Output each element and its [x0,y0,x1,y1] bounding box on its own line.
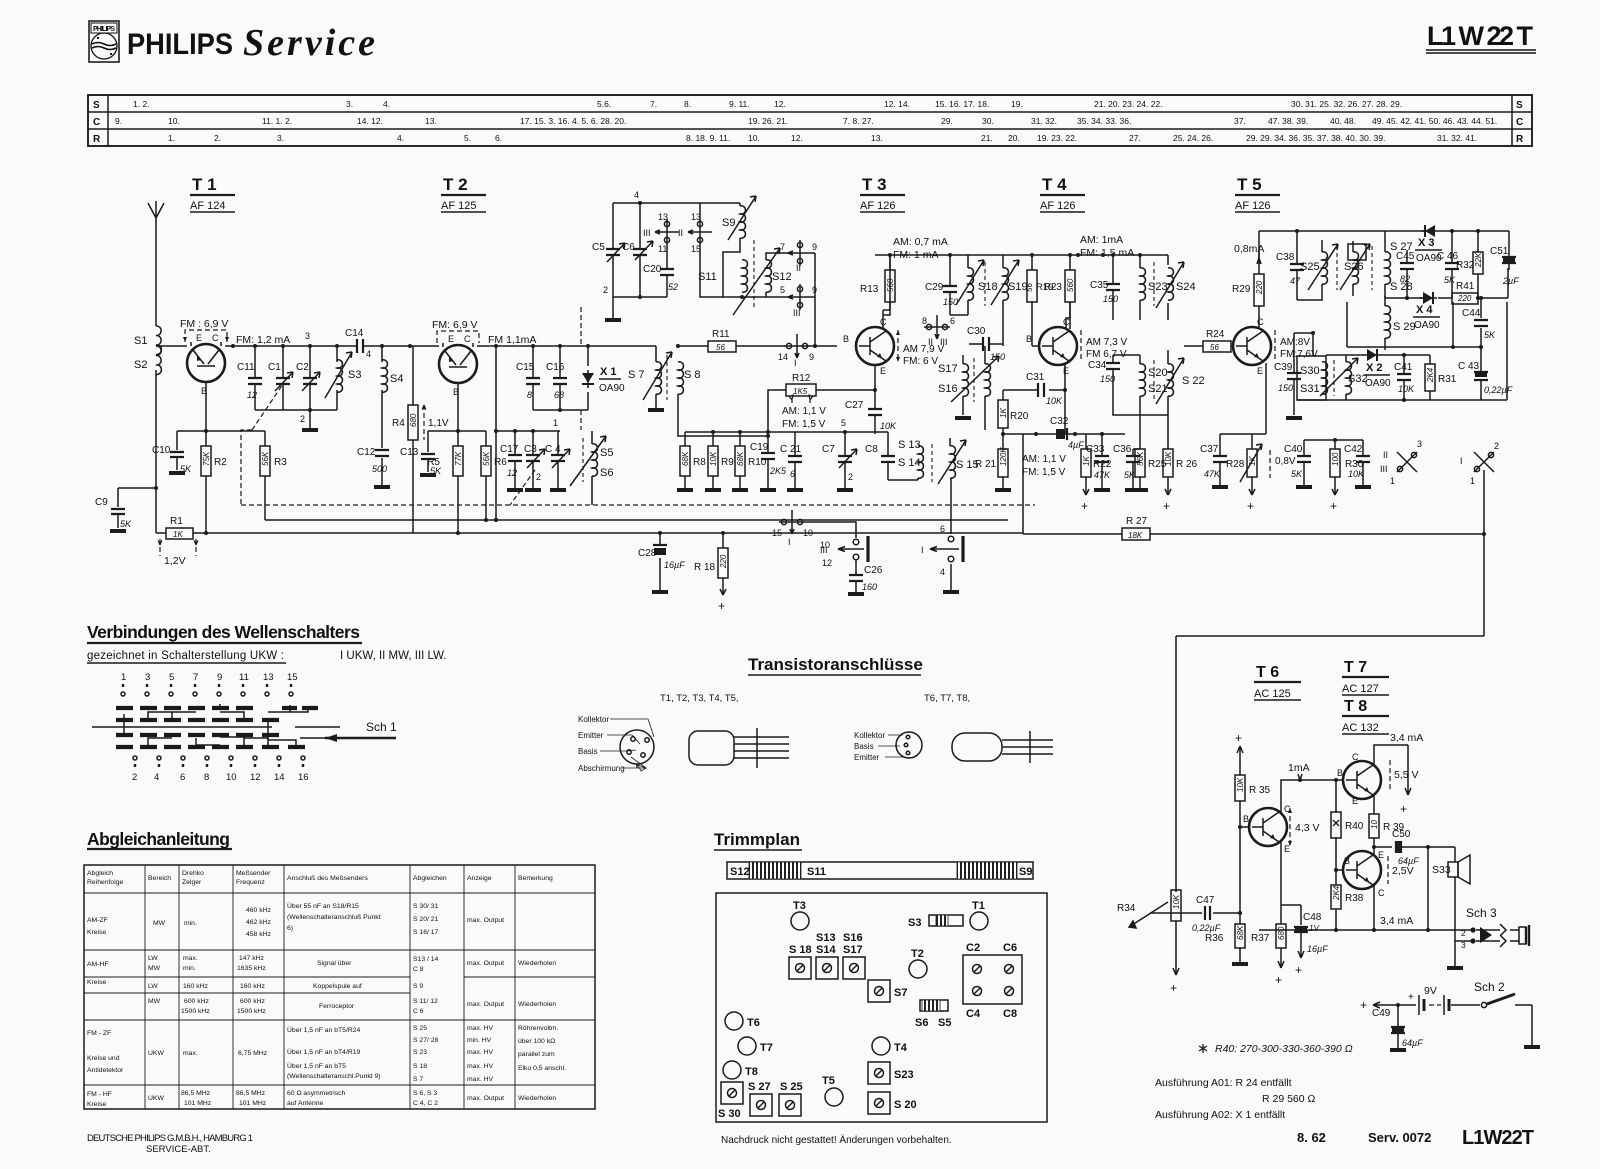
svg-text:600 kHz: 600 kHz [240,998,266,1005]
svg-text:9V: 9V [1424,985,1437,997]
svg-text:S 30/ 31: S 30/ 31 [413,903,439,910]
svg-text:8. 62: 8. 62 [1297,1130,1326,1145]
svg-text:S 27: S 27 [748,1081,771,1093]
svg-text:8: 8 [922,316,927,326]
svg-text:S17: S17 [843,944,863,956]
svg-text:+: + [1400,802,1407,816]
svg-text:680: 680 [1277,926,1286,940]
svg-text:13.: 13. [871,133,883,143]
svg-text:S25: S25 [1300,261,1320,273]
svg-text:S3: S3 [908,917,921,929]
svg-text:C49: C49 [1372,1008,1391,1019]
svg-text:T2: T2 [911,948,924,960]
svg-text:(Wellenschalteranschl.Punkt 9): (Wellenschalteranschl.Punkt 9) [287,1073,381,1080]
svg-text:6: 6 [180,772,185,783]
svg-text:C7: C7 [822,444,835,455]
svg-text:12. 14.: 12. 14. [884,99,910,109]
svg-text:C28: C28 [638,548,657,559]
svg-text:S30: S30 [1300,365,1320,377]
svg-text:10K: 10K [1236,777,1245,792]
svg-text:II: II [928,337,933,347]
svg-text:S 7: S 7 [413,1076,423,1083]
svg-text:C32: C32 [1050,416,1069,427]
svg-text:R 29 560 Ω: R 29 560 Ω [1262,1093,1316,1105]
svg-text:11. 1. 2.: 11. 1. 2. [262,116,292,126]
svg-text:150: 150 [1278,383,1293,393]
svg-text:3: 3 [305,331,310,341]
svg-text:6: 6 [950,316,955,326]
svg-text:2K4: 2K4 [1332,885,1341,901]
svg-text:C 4: C 4 [545,444,561,455]
svg-text:1K5: 1K5 [793,387,808,396]
svg-text:17. 15. 3. 16. 4. 5.: 17. 15. 3. 16. 4. 5. 6. 28. 20. [520,116,626,126]
svg-text:R9: R9 [721,457,734,468]
svg-text:S3: S3 [348,369,361,381]
svg-text:S14: S14 [816,944,836,956]
svg-text:R3: R3 [274,457,287,468]
svg-text:Verbindungen des Wellenschalte: Verbindungen des Wellenschalters [87,622,360,642]
svg-text:Über 1,5 nF an bT5: Über 1,5 nF an bT5 [287,1062,346,1070]
svg-text:C2: C2 [296,362,309,373]
svg-text:1500 kHz: 1500 kHz [181,1008,210,1015]
svg-text:100: 100 [1331,452,1340,466]
svg-text:12.: 12. [774,99,786,109]
svg-text:1K: 1K [999,408,1008,418]
svg-text:C 43: C 43 [1458,361,1480,372]
svg-text:C 8: C 8 [413,966,424,973]
svg-text:R 35: R 35 [1249,785,1271,796]
svg-text:2: 2 [536,472,541,482]
svg-text:+: + [1247,499,1254,513]
svg-text:B: B [843,334,849,344]
svg-text:C42: C42 [1344,444,1363,455]
svg-text:Sch 1: Sch 1 [366,720,397,734]
svg-text:1: 1 [1390,476,1395,486]
svg-text:10.: 10. [168,116,180,126]
svg-text:2: 2 [1461,928,1466,938]
svg-text:9: 9 [812,242,817,252]
svg-text:1635 kHz: 1635 kHz [237,965,266,972]
svg-text:max. Output: max. Output [467,917,504,924]
svg-text:22K: 22K [1474,252,1483,268]
svg-text:S 22: S 22 [1182,375,1205,387]
svg-text:160 kHz: 160 kHz [183,983,209,990]
svg-text:C5: C5 [592,242,605,253]
svg-text:I: I [921,545,924,555]
svg-text:T 8: T 8 [1344,698,1367,715]
svg-text:Ausführung A01: R 24 entfä: Ausführung A01: R 24 entfällt [1155,1077,1292,1089]
svg-text:56: 56 [1025,283,1034,292]
svg-text:37.: 37. [1234,116,1246,126]
svg-text:40. 48.: 40. 48. [1330,116,1356,126]
svg-text:C48: C48 [1303,912,1322,923]
svg-text:S24: S24 [1176,281,1196,293]
svg-text:S12: S12 [730,866,750,878]
svg-text:Wiederholen: Wiederholen [518,960,556,967]
svg-text:C: C [93,117,100,128]
svg-text:Emitter: Emitter [578,731,604,740]
svg-text:Elko 0,5 anschl.: Elko 0,5 anschl. [518,1065,566,1072]
svg-text:Trimmplan: Trimmplan [714,830,800,849]
svg-text:8. 18. 9. 11.: 8. 18. 9. 11. [686,133,730,143]
svg-text:R 18: R 18 [694,562,716,573]
svg-text:S 15: S 15 [956,459,979,471]
svg-text:R24: R24 [1206,329,1225,340]
svg-text:R 26: R 26 [1176,459,1198,470]
svg-text:C4: C4 [966,1008,981,1020]
svg-text:X 3: X 3 [1418,237,1435,249]
svg-text:C50: C50 [1392,829,1411,840]
svg-text:+: + [1275,973,1282,987]
svg-text:2,5V: 2,5V [1392,865,1414,877]
svg-text:S 18: S 18 [789,944,812,956]
svg-text:AM: 1,1 V: AM: 1,1 V [1022,454,1066,465]
svg-text:OA90: OA90 [1414,320,1440,331]
svg-text:47K: 47K [1204,469,1221,479]
svg-text:R13: R13 [860,284,879,295]
svg-text:47: 47 [1290,276,1301,286]
svg-text:C 6: C 6 [413,1008,424,1015]
svg-text:500: 500 [372,464,387,474]
svg-text:19. 23. 22.: 19. 23. 22. [1037,133,1077,143]
svg-text:SERVICE-ABT.: SERVICE-ABT. [146,1144,211,1155]
svg-text:12: 12 [507,468,517,478]
svg-text:max. HV: max. HV [467,1063,494,1070]
svg-text:T5: T5 [822,1075,835,1087]
svg-text:S32: S32 [1348,373,1368,385]
svg-text:S 25: S 25 [780,1081,803,1093]
svg-text:12.: 12. [791,133,803,143]
svg-text:5: 5 [169,672,174,683]
svg-text:Basis: Basis [854,742,874,751]
svg-text:9. 11.: 9. 11. [729,99,750,109]
svg-text:T 7: T 7 [1344,659,1367,676]
svg-text:10: 10 [226,772,237,783]
svg-text:III: III [643,228,651,238]
svg-text:Wiederholen: Wiederholen [518,1095,556,1102]
svg-text:III: III [1380,464,1388,474]
svg-text:PHILIPS: PHILIPS [127,28,233,61]
svg-text:1: 1 [1470,476,1475,486]
svg-text:AM 7,9 V: AM 7,9 V [903,344,944,355]
svg-text:25. 24. 26.: 25. 24. 26. [1173,133,1213,143]
svg-text:C31: C31 [1026,372,1045,383]
svg-text:9: 9 [809,352,814,362]
svg-text:2: 2 [603,285,608,295]
svg-text:2µF: 2µF [1502,276,1519,286]
svg-text:E: E [196,333,202,343]
svg-text:PHILIPS: PHILIPS [93,26,115,33]
svg-text:AM: 1,1 V: AM: 1,1 V [782,406,826,417]
svg-text:B: B [1344,856,1350,866]
svg-text:462 kHz: 462 kHz [246,919,272,926]
svg-text:16: 16 [298,772,309,783]
svg-text:S 14: S 14 [898,457,921,469]
svg-text:13: 13 [263,672,274,683]
svg-text:OA90: OA90 [599,383,625,394]
svg-text:1mA: 1mA [1288,762,1310,774]
svg-text:150: 150 [1100,374,1115,384]
svg-text:680: 680 [409,413,418,427]
svg-text:S 25: S 25 [413,1025,427,1032]
svg-text:1.: 1. [168,133,175,143]
svg-text:Bereich: Bereich [148,875,171,882]
svg-text:11: 11 [239,672,249,683]
svg-text:0,8mA: 0,8mA [1234,243,1264,255]
svg-text:AM 7,3 V: AM 7,3 V [1086,337,1127,348]
svg-text:S23: S23 [894,1069,914,1081]
svg-text:Anschluß des Meßsenders: Anschluß des Meßsenders [287,875,368,882]
svg-text:C 21: C 21 [780,444,802,455]
svg-text:R20: R20 [1010,411,1029,422]
svg-text:1: 1 [553,418,558,428]
svg-text:I UKW, II MW, III LW.: I UKW, II MW, III LW. [340,650,447,662]
svg-text:+: + [718,599,725,613]
svg-text:S 23: S 23 [413,1049,427,1056]
svg-text:T1, T2, T3, T4, T5,: T1, T2, T3, T4, T5, [660,693,739,704]
svg-text:56K: 56K [1136,451,1145,466]
svg-text:R2: R2 [214,457,227,468]
svg-text:B: B [1337,768,1343,778]
svg-text:R34: R34 [1117,903,1136,914]
svg-text:9.: 9. [115,116,122,126]
svg-text:S 16/ 17: S 16/ 17 [413,929,439,936]
svg-text:8.: 8. [684,99,691,109]
svg-text:+: + [1081,499,1088,513]
svg-text:max. HV: max. HV [467,1076,494,1083]
svg-text:3: 3 [1417,439,1422,449]
svg-text:+: + [1408,992,1414,1003]
svg-text:21.: 21. [981,133,993,143]
svg-text:Kollektor: Kollektor [854,731,885,740]
svg-text:Bemerkung: Bemerkung [518,875,553,882]
svg-text:5.6.: 5.6. [597,99,611,109]
svg-text:C6: C6 [1003,942,1017,954]
svg-text:14. 12.: 14. 12. [357,116,383,126]
svg-text:R38: R38 [1345,893,1364,904]
svg-text:max. HV: max. HV [467,1025,494,1032]
svg-text:R40: 270-300-330-360-390 Ω: R40: 270-300-330-360-390 Ω [1215,1043,1353,1055]
svg-text:Meßsender: Meßsender [236,870,271,877]
svg-text:160 kHz: 160 kHz [240,983,266,990]
svg-text:S20: S20 [1148,367,1168,379]
svg-text:10K: 10K [880,421,897,431]
svg-text:FM: 1,5 V: FM: 1,5 V [782,419,826,430]
svg-text:C1: C1 [268,362,281,373]
svg-text:Ferroceptor: Ferroceptor [319,1003,355,1010]
svg-text:7.: 7. [650,99,657,109]
svg-text:Abgleichanleitung: Abgleichanleitung [87,829,230,849]
svg-text:30.: 30. [982,116,994,126]
svg-text:4: 4 [634,190,639,200]
svg-text:FM: 1,5 V: FM: 1,5 V [1022,467,1066,478]
svg-text:Zeiger: Zeiger [182,879,202,886]
svg-text:S31: S31 [1300,383,1320,395]
svg-text:S6: S6 [915,1017,928,1029]
svg-text:18K: 18K [1128,531,1143,540]
svg-text:C38: C38 [1276,252,1295,263]
svg-text:S5: S5 [938,1017,951,1029]
svg-text:Anzeige: Anzeige [467,875,492,882]
svg-text:C6: C6 [622,242,635,253]
svg-text:1K: 1K [1082,456,1091,466]
svg-text:min. HV: min. HV [467,1037,492,1044]
svg-text:S 27/ 28: S 27/ 28 [413,1037,439,1044]
svg-text:3.: 3. [346,99,353,109]
svg-text:R4: R4 [392,418,405,429]
svg-text:600 kHz: 600 kHz [184,998,210,1005]
svg-text:S11: S11 [698,271,717,283]
svg-text:C27: C27 [845,400,864,411]
svg-text:C11: C11 [237,362,255,373]
svg-text:E: E [448,334,454,344]
svg-text:0,22µF: 0,22µF [1192,923,1221,933]
svg-text:AC 127: AC 127 [1342,683,1379,695]
svg-text:10K: 10K [1172,894,1181,909]
svg-text:C47: C47 [1196,895,1215,906]
svg-text:C3: C3 [524,444,537,455]
svg-text:1: 1 [121,672,126,683]
svg-text:S18: S18 [978,281,998,293]
svg-text:+: + [1360,998,1367,1012]
svg-text:147 kHz: 147 kHz [239,955,265,962]
svg-text:+: + [1295,963,1302,977]
svg-text:31. 32.: 31. 32. [1031,116,1057,126]
svg-text:2: 2 [132,772,137,783]
svg-text:27.: 27. [1129,133,1141,143]
svg-text:14: 14 [274,772,285,783]
svg-text:FM - HF: FM - HF [87,1091,112,1098]
svg-text:C45: C45 [1396,251,1415,262]
svg-text:Emitter: Emitter [854,753,880,762]
svg-text:MW: MW [153,920,166,927]
svg-text:S5: S5 [600,447,613,459]
svg-text:3: 3 [145,672,150,683]
svg-text:S9: S9 [1019,866,1032,878]
svg-text:29.: 29. [941,116,953,126]
svg-text:1. 2.: 1. 2. [133,99,150,109]
svg-text:I: I [788,537,791,547]
svg-text:56K: 56K [482,451,491,466]
svg-text:S7: S7 [894,987,907,999]
svg-text:LW: LW [148,955,158,962]
svg-text:S: S [1516,100,1523,111]
svg-text:Über 1,5 nF an bT4/R19: Über 1,5 nF an bT4/R19 [287,1048,361,1056]
svg-text:S 30: S 30 [718,1108,741,1120]
svg-text:47K: 47K [1094,470,1111,480]
svg-text:C35: C35 [1090,280,1109,291]
svg-text:52: 52 [668,282,678,292]
svg-text:1V: 1V [1309,924,1319,933]
svg-text:6: 6 [940,524,945,534]
svg-text:1,1V: 1,1V [428,418,449,429]
svg-text:R28: R28 [1226,459,1245,470]
svg-text:Sch 2: Sch 2 [1474,980,1505,994]
svg-text:C10: C10 [152,445,171,456]
svg-text:S11: S11 [807,866,826,878]
svg-text:X 2: X 2 [1366,362,1383,374]
svg-text:T4: T4 [894,1042,908,1054]
svg-text:47. 38. 39.: 47. 38. 39. [1268,116,1308,126]
svg-text:C8: C8 [865,444,878,455]
svg-text:1500 kHz: 1500 kHz [237,1008,266,1015]
svg-text:max.: max. [183,955,198,962]
svg-text:21. 20. 23. 24. 22.: 21. 20. 23. 24. 22. [1094,99,1163,109]
svg-text:Abgleichen: Abgleichen [413,875,447,882]
svg-text:C37: C37 [1200,444,1219,455]
svg-text:2: 2 [1494,441,1499,451]
svg-text:49. 45. 42. 41. 50. 46.: 49. 45. 42. 41. 50. 46. 43. 44. 51. [1372,116,1497,126]
svg-text:68K: 68K [681,451,690,466]
svg-text:S6: S6 [600,467,613,479]
svg-text:T 2: T 2 [443,175,468,194]
svg-text:E: E [1063,366,1069,376]
svg-text:S13 / 14: S13 / 14 [413,956,439,963]
svg-text:min.: min. [184,920,197,927]
svg-text:10K: 10K [1164,451,1173,466]
svg-text:4: 4 [366,349,371,359]
svg-text:6): 6) [287,925,293,932]
svg-text:15: 15 [287,672,298,683]
svg-text:Kreise: Kreise [87,929,106,936]
svg-text:8: 8 [204,772,209,783]
svg-text:S 20: S 20 [894,1099,917,1111]
svg-text:4.: 4. [397,133,404,143]
svg-text:X 1: X 1 [600,366,617,378]
svg-text:C20: C20 [643,264,662,275]
svg-text:S33: S33 [1432,864,1451,876]
svg-text:10: 10 [1370,820,1379,829]
svg-text:75K: 75K [202,451,211,466]
svg-text:R31: R31 [1438,374,1457,385]
svg-text:12: 12 [822,558,832,568]
svg-text:C12: C12 [357,447,376,458]
svg-text:56K: 56K [261,451,270,466]
svg-text:B: B [1243,814,1249,824]
svg-text:parallel zum: parallel zum [518,1051,555,1058]
svg-text:T 1: T 1 [192,175,217,194]
svg-text:T8: T8 [745,1066,758,1078]
svg-text:L1 W 22 T: L1 W 22 T [1427,21,1534,51]
svg-text:30. 31. 25. 32. 26. 27. 28: 30. 31. 25. 32. 26. 27. 28. 29. [1291,99,1402,109]
svg-text:AM: 1mA: AM: 1mA [1080,234,1123,246]
svg-text:C29: C29 [925,282,944,293]
svg-text:31. 32. 41.: 31. 32. 41. [1437,133,1477,143]
svg-text:+: + [1163,499,1170,513]
svg-text:AF 126: AF 126 [860,200,895,212]
svg-text:6.: 6. [495,133,502,143]
svg-text:R40: R40 [1345,821,1364,832]
svg-text:1,2V: 1,2V [164,555,186,567]
svg-text:max. Output: max. Output [467,960,504,967]
svg-text:T6: T6 [747,1017,760,1029]
svg-text:C2: C2 [966,942,980,954]
svg-text:S16: S16 [843,932,863,944]
svg-text:C36: C36 [1113,444,1132,455]
svg-text:12: 12 [247,390,257,400]
svg-text:3.: 3. [277,133,284,143]
svg-text:R 27: R 27 [1126,516,1148,527]
svg-text:C19: C19 [750,442,769,453]
svg-text:9: 9 [217,672,222,683]
svg-text:Koppelspule auf: Koppelspule auf [313,983,362,990]
svg-text:13.: 13. [425,116,437,126]
svg-text:19.: 19. [1011,99,1023,109]
svg-text:FM - ZF: FM - ZF [87,1030,111,1037]
svg-text:+: + [1330,499,1337,513]
svg-text:AM: 0,7 mA: AM: 0,7 mA [893,236,948,248]
svg-text:III: III [820,545,828,555]
